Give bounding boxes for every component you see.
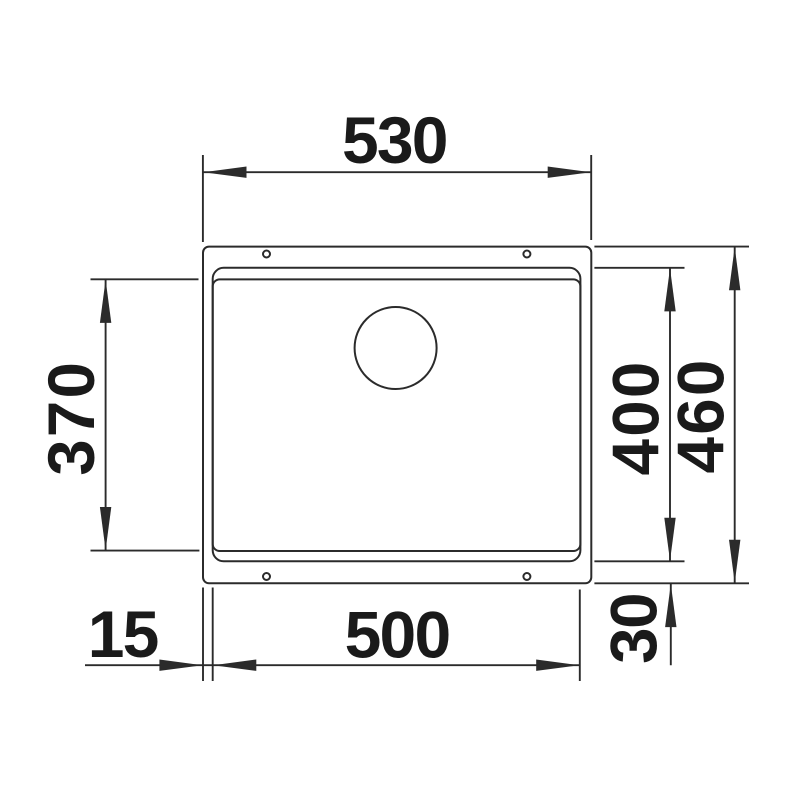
svg-text:30: 30 — [597, 594, 670, 664]
svg-text:400: 400 — [599, 360, 672, 476]
svg-text:15: 15 — [88, 597, 158, 671]
svg-text:460: 460 — [665, 358, 738, 474]
svg-text:370: 370 — [35, 360, 108, 476]
svg-text:530: 530 — [342, 103, 447, 177]
svg-text:500: 500 — [345, 597, 450, 671]
